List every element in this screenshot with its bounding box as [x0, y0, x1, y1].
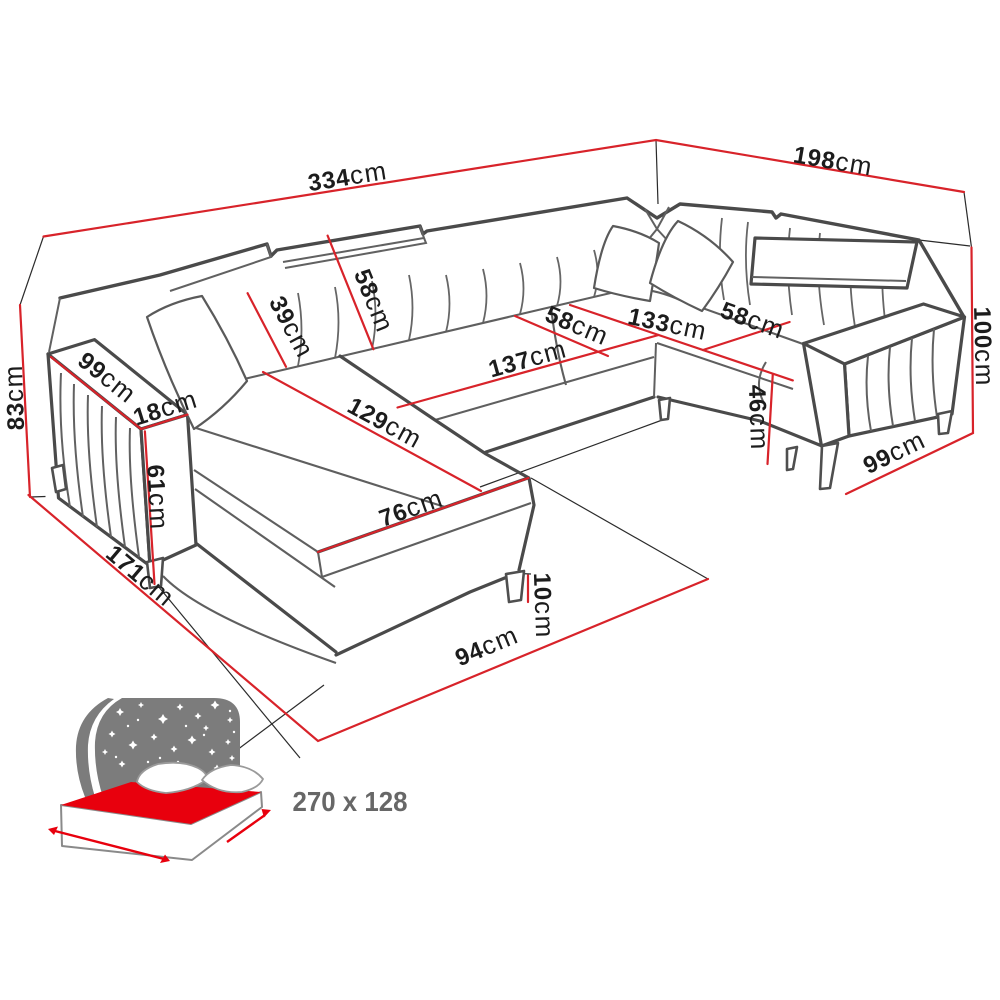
svg-text:46cm: 46cm: [743, 384, 775, 451]
svg-text:61cm: 61cm: [141, 464, 174, 532]
svg-text:10cm: 10cm: [528, 572, 560, 639]
svg-text:100cm: 100cm: [968, 306, 1000, 387]
svg-text:270 x 128: 270 x 128: [293, 786, 408, 817]
svg-text:83cm: 83cm: [0, 364, 30, 431]
